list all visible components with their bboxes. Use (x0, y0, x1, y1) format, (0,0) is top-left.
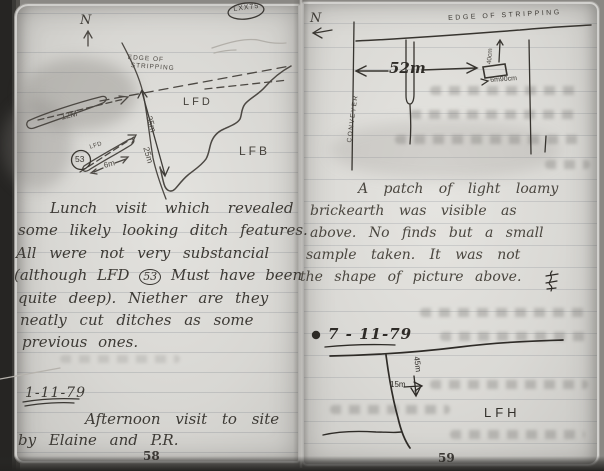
lunch-entry-line5: quite deep). Niether are they (18, 290, 268, 307)
measure-52m-label: 52m (389, 60, 426, 77)
lunch-entry-line3: All were not very substancial (16, 245, 269, 262)
north-label-right: N (310, 12, 321, 26)
lunch-entry-line6: neatly cut ditches as some (20, 312, 253, 329)
table-shadow (0, 456, 604, 471)
brickearth-line5: the shape of picture above. (300, 270, 521, 285)
north-label-left: N (80, 14, 91, 28)
lfd-area-label: LFD (183, 96, 213, 108)
feature-53-label: 53 (75, 155, 84, 164)
brickearth-line4: sample taken. It was not (306, 248, 520, 263)
lunch-entry-line7: previous ones. (22, 334, 138, 351)
lfh-area-label: LFH (484, 406, 521, 420)
date-7-11-79: 7 - 11-79 (328, 326, 412, 343)
lunch-entry-line4-post: Must have been (171, 266, 302, 284)
notebook-photo: LXX75 N EDGE OF STRIPPING 12M 35m 25m LF… (0, 0, 604, 471)
date-1-11-79: 1-11-79 (25, 386, 86, 401)
measure-15m-label: 15m (390, 381, 406, 390)
lunch-entry-line4: (although LFD 53 Must have been (14, 267, 302, 285)
lunch-entry-line4-pre: (although LFD (14, 266, 129, 284)
brickearth-line3: above. No finds but a small (310, 226, 544, 241)
measure-45m-label: 45m (411, 356, 422, 373)
brickearth-line1: A patch of light loamy (358, 182, 558, 197)
afternoon-entry-line1: Afternoon visit to site (85, 411, 279, 428)
lfb-area-label: LFB (239, 145, 270, 158)
lunch-entry-line1: Lunch visit which revealed (50, 200, 293, 217)
lunch-entry-line2: some likely looking ditch features. (18, 222, 308, 239)
depth-40cm-label: 40cm (486, 48, 494, 64)
brickearth-line2: brickearth was visible as (310, 204, 517, 219)
feature-53-inline: 53 (139, 269, 161, 285)
afternoon-entry-line2: by Elaine and P.R. (18, 432, 179, 449)
